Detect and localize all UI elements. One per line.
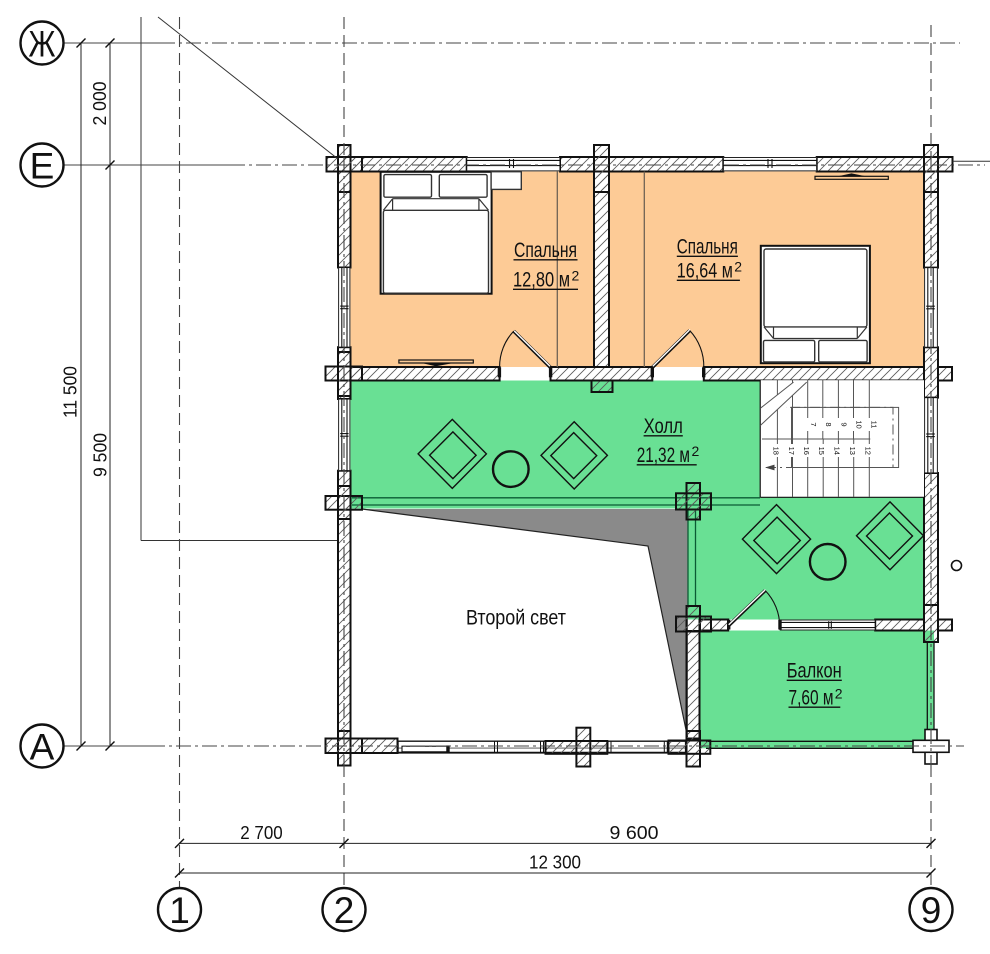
svg-text:Спальня: Спальня [677,236,738,259]
svg-text:11: 11 [870,421,879,429]
svg-text:2 000: 2 000 [90,82,110,126]
svg-text:12,80 м: 12,80 м [513,269,570,292]
svg-text:10: 10 [855,420,864,428]
svg-text:9: 9 [921,890,942,931]
svg-text:16,64 м: 16,64 м [677,260,733,283]
svg-text:13: 13 [848,447,857,455]
svg-text:Е: Е [30,146,55,187]
svg-text:Холл: Холл [644,415,683,438]
svg-text:12 300: 12 300 [529,853,581,873]
svg-text:2 700: 2 700 [240,823,282,843]
svg-text:Второй свет: Второй свет [466,607,566,630]
svg-text:16: 16 [802,447,811,455]
svg-text:А: А [30,727,55,768]
svg-text:9 500: 9 500 [91,433,111,477]
svg-text:11 500: 11 500 [61,366,81,418]
svg-text:9 600: 9 600 [610,823,659,843]
svg-text:Ж: Ж [29,24,56,65]
svg-text:7,60 м: 7,60 м [789,687,834,710]
svg-text:18: 18 [772,447,781,455]
svg-text:8: 8 [824,422,833,426]
svg-text:Балкон: Балкон [787,660,842,683]
svg-text:2: 2 [734,259,742,275]
svg-text:1: 1 [169,890,190,931]
svg-text:7: 7 [809,422,818,426]
svg-text:12: 12 [864,447,873,455]
svg-text:15: 15 [817,447,826,455]
svg-text:17: 17 [787,447,796,455]
svg-text:2: 2 [334,890,355,931]
svg-text:21,32 м: 21,32 м [637,444,690,467]
svg-text:2: 2 [835,686,843,702]
svg-text:2: 2 [692,443,700,459]
svg-text:2: 2 [572,268,580,284]
svg-text:9: 9 [839,422,848,426]
svg-text:14: 14 [833,447,842,455]
svg-text:Спальня: Спальня [514,239,577,262]
